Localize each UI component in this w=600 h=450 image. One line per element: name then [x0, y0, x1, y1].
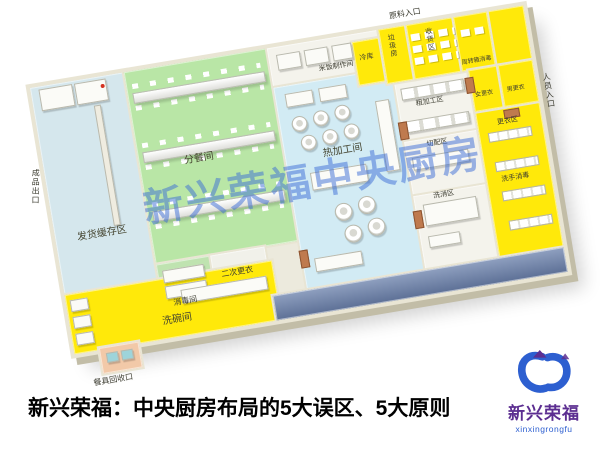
- caption-title: 新兴荣福：中央厨房布局的5大误区、5大原则: [28, 392, 450, 422]
- entrance-label-staff: 人员入口: [541, 72, 556, 109]
- exit-label-tableware: 餐具回收口: [93, 373, 134, 388]
- tableware-return-window: [121, 349, 134, 361]
- floorplan-canvas: 发货缓存区 分餐间 消毒间 二次更衣 热加工间 米饭制作间 粗加工区 切配区 洗…: [30, 5, 568, 354]
- exit-label-product: 成品出口: [30, 169, 39, 205]
- logo-en-text: xinxingrongfu: [498, 424, 590, 434]
- room-wash-disinfect: [413, 184, 499, 270]
- xinxingrongfu-logo-icon: [516, 381, 572, 398]
- room-men-changing: [498, 60, 539, 107]
- rice-machine: [331, 42, 353, 61]
- entrance-label-material: 原料入口: [389, 8, 422, 22]
- tableware-return-window: [106, 351, 119, 363]
- room-tableware-return: [99, 342, 143, 374]
- logo-cn-text: 新兴荣福: [498, 399, 590, 424]
- brand-logo: 新兴荣福 xinxingrongfu: [498, 350, 590, 434]
